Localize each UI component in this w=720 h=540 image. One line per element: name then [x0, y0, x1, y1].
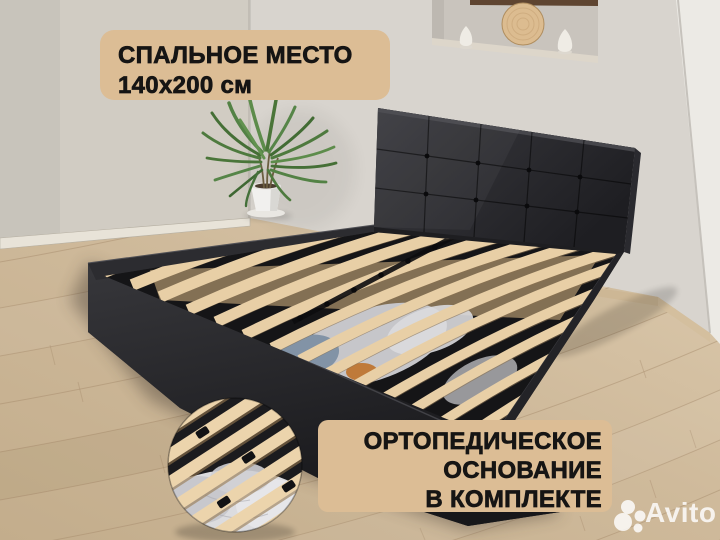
- decor-plate: [502, 3, 544, 45]
- avito-watermark: Avito: [598, 494, 720, 540]
- base-badge-line3: В КОМПЛЕКТЕ: [318, 485, 602, 514]
- product-photo: СПАЛЬНОЕ МЕСТО 140x200 см ОРТОПЕДИЧЕСКОЕ…: [0, 0, 720, 540]
- base-badge-line1: ОРТОПЕДИЧЕСКОЕ: [318, 427, 602, 456]
- niche-wood-top: [470, 0, 598, 6]
- size-badge-line1: СПАЛЬНОЕ МЕСТО: [118, 41, 390, 71]
- avito-logo-text: Avito: [645, 497, 716, 529]
- wall-left-shade: [0, 0, 60, 250]
- size-badge: СПАЛЬНОЕ МЕСТО 140x200 см: [100, 30, 390, 100]
- orthopedic-base-badge: ОРТОПЕДИЧЕСКОЕ ОСНОВАНИЕ В КОМПЛЕКТЕ: [318, 420, 612, 512]
- base-badge-line2: ОСНОВАНИЕ: [318, 456, 602, 485]
- size-badge-line2: 140x200 см: [118, 71, 390, 101]
